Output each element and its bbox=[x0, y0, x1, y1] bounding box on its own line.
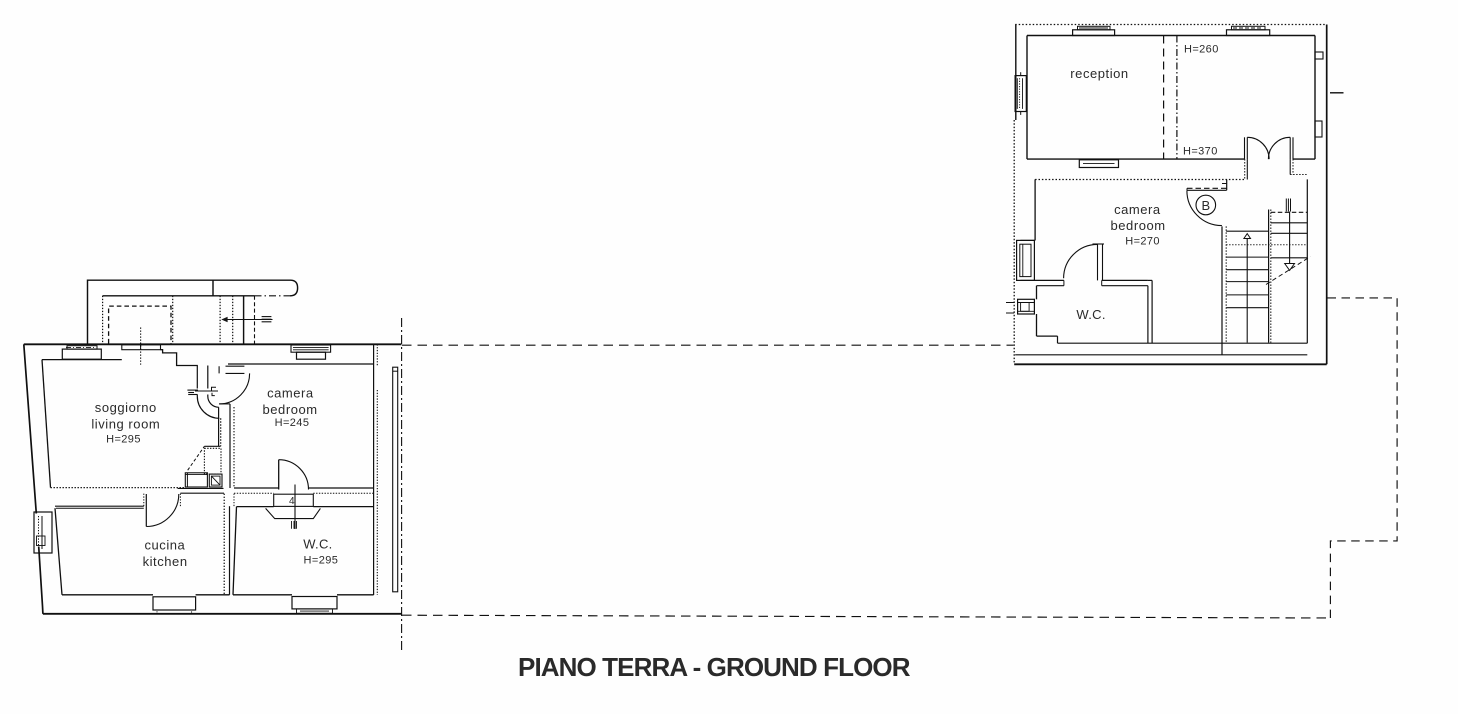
svg-text:W.C.: W.C. bbox=[1076, 307, 1105, 322]
svg-text:bedroom: bedroom bbox=[263, 402, 318, 417]
svg-text:bedroom: bedroom bbox=[1111, 218, 1166, 233]
svg-text:cucina: cucina bbox=[144, 538, 185, 553]
svg-text:4: 4 bbox=[289, 496, 295, 507]
svg-text:soggiorno: soggiorno bbox=[95, 400, 157, 415]
svg-text:reception: reception bbox=[1070, 66, 1128, 81]
svg-text:camera: camera bbox=[1114, 202, 1161, 217]
svg-text:H=295: H=295 bbox=[304, 555, 339, 567]
svg-text:kitchen: kitchen bbox=[143, 554, 188, 569]
svg-text:H=270: H=270 bbox=[1125, 236, 1160, 248]
svg-text:living room: living room bbox=[91, 417, 160, 432]
svg-text:H=370: H=370 bbox=[1183, 146, 1218, 158]
svg-text:H=260: H=260 bbox=[1184, 44, 1219, 56]
svg-text:H=295: H=295 bbox=[106, 434, 141, 446]
svg-text:W.C.: W.C. bbox=[303, 537, 332, 552]
svg-text:PIANO TERRA - GROUND FLOOR: PIANO TERRA - GROUND FLOOR bbox=[518, 652, 911, 682]
svg-text:B: B bbox=[1201, 198, 1210, 213]
svg-text:H=245: H=245 bbox=[275, 417, 310, 429]
svg-text:camera: camera bbox=[267, 386, 314, 401]
